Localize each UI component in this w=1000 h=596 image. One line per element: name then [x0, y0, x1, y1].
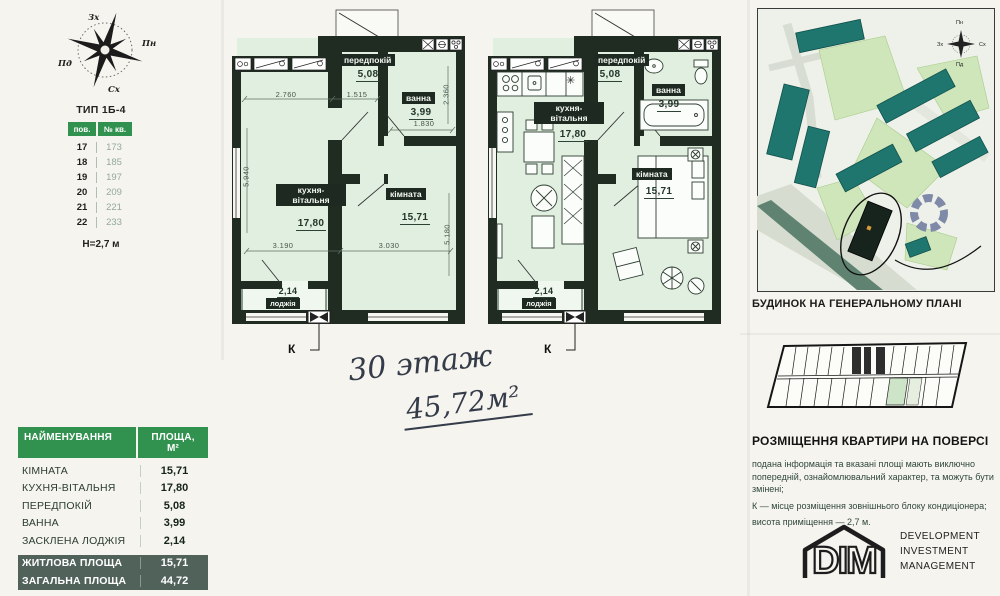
apt-no: 173 — [96, 142, 131, 153]
table-row: ЗАСКЛЕНА ЛОДЖІЯ2,14 — [18, 532, 208, 550]
table-row: 22233 — [68, 215, 134, 230]
site-compass-e: Сх — [979, 42, 986, 48]
header-name: НАЙМЕНУВАННЯ — [18, 427, 136, 458]
chair-icon — [688, 278, 704, 294]
room-label-bath: ванна — [652, 84, 685, 96]
logo-line: INVESTMENT — [900, 544, 980, 559]
total-area: 15,71 — [140, 557, 208, 569]
apt-no: 221 — [96, 202, 131, 213]
floor-no: 17 — [68, 142, 96, 153]
disclaimer-line: подана інформація та вказані площі мають… — [752, 458, 995, 496]
room-area-hallway: 5,08 — [350, 69, 386, 80]
floorplan-dimensioned: передпокій 5,08 ванна 3,99 кухня-вітальн… — [232, 8, 465, 360]
armchair-icon — [531, 185, 557, 211]
floorplan-furnished: передпокій 5,08 ванна 3,99 кухня-вітальн… — [488, 8, 721, 360]
tv-stand-icon — [497, 224, 502, 258]
room-label-hallway: передпокій — [340, 54, 395, 66]
room-area-loggia: 2,14 — [524, 286, 564, 296]
area-table-header: НАЙМЕНУВАННЯ ПЛОЩА, М² — [18, 427, 208, 458]
room-area-bath: 3,99 — [406, 107, 436, 118]
room-area-loggia: 2,14 — [268, 286, 308, 296]
room-label-kitchen: кухня-вітальня — [276, 184, 346, 206]
table-row: КІМНАТА15,71 — [18, 462, 208, 480]
floor-layout-strip — [760, 338, 994, 418]
total-row: ЗАГАЛЬНА ПЛОЩА44,72 — [18, 572, 208, 590]
developer-logo: DIM DEVELOPMENT INVESTMENT MANAGEMENT — [798, 520, 998, 582]
table-row: 18185 — [68, 155, 134, 170]
ceiling-height-note: Н=2,7 м — [68, 239, 134, 250]
room-label-room: кімната — [386, 188, 426, 200]
apt-no: 185 — [96, 157, 131, 168]
sconce-icon — [688, 240, 703, 253]
type-table: ТИП 1Б-4 пов. № кв. 17173 18185 19197 20… — [68, 104, 134, 250]
dim-2360: 2.360 — [442, 73, 451, 117]
disclaimer-line: К — місце розміщення зовнішнього блоку к… — [752, 500, 995, 513]
core-blocks — [852, 347, 885, 374]
room-area-room: 15,71 — [638, 186, 680, 197]
col-floor: пов. — [68, 122, 96, 136]
site-compass-s: Пд — [956, 62, 964, 68]
site-plan-caption: БУДИНОК НА ГЕНЕРАЛЬНОМУ ПЛАНІ — [752, 298, 1000, 310]
table-row: 17173 — [68, 140, 134, 155]
plant-icon — [661, 267, 683, 289]
room-label-loggia: лоджія — [522, 298, 556, 309]
room-label-room: кімната — [632, 168, 672, 180]
paper-crease — [747, 0, 750, 596]
compass-label-north: Пн — [141, 39, 156, 49]
total-area: 44,72 — [140, 575, 208, 587]
sconce-icon — [688, 148, 703, 161]
handwritten-area-note: 45,72м² — [400, 378, 532, 430]
sofa-icon — [562, 156, 584, 244]
dim-3030: 3.030 — [362, 241, 416, 250]
table-row: ПЕРЕДПОКІЙ5,08 — [18, 497, 208, 515]
coffee-table-icon — [532, 216, 554, 248]
condenser-key-label: К — [544, 342, 551, 356]
room-label-kitchen: кухня-вітальня — [534, 102, 604, 124]
room-label-loggia: лоджія — [266, 298, 300, 309]
condenser-mark — [564, 311, 586, 350]
dim-5180: 5.180 — [443, 213, 452, 257]
compass-label-east: Сх — [108, 85, 121, 95]
floor-no: 22 — [68, 217, 96, 228]
table-row: ВАННА3,99 — [18, 515, 208, 533]
dim-1515: 1.515 — [334, 90, 380, 99]
utility-icons — [678, 39, 718, 50]
row-area: 17,80 — [140, 482, 208, 494]
room-label-bath: ванна — [402, 92, 435, 104]
room-area-room: 15,71 — [394, 212, 436, 223]
dim-letters: DIM — [812, 540, 876, 582]
row-name: ПЕРЕДПОКІЙ — [18, 500, 140, 512]
scanned-floorplan-page: Зх Пн Пд Сх ТИП 1Б-4 пов. № кв. 17173 18… — [0, 0, 1000, 596]
dim-2760: 2.760 — [258, 90, 314, 99]
area-table-totals: ЖИТЛОВА ПЛОЩА15,71 ЗАГАЛЬНА ПЛОЩА44,72 — [18, 555, 208, 590]
compass-label-west: Зх — [88, 13, 100, 23]
floor-no: 18 — [68, 157, 96, 168]
condenser-mark — [308, 311, 330, 350]
row-name: КУХНЯ-ВІТАЛЬНЯ — [18, 482, 140, 494]
row-area: 3,99 — [140, 517, 208, 529]
logo-line: DEVELOPMENT — [900, 529, 980, 544]
room-area-kitchen: 17,80 — [288, 218, 334, 229]
site-plan-map: Пн Сх Зх Пд — [757, 8, 995, 292]
site-compass-n: Пн — [956, 20, 963, 26]
row-area: 15,71 — [140, 465, 208, 477]
apt-no: 209 — [96, 187, 131, 198]
site-compass-w: Зх — [937, 42, 943, 48]
dim-5940: 5.940 — [242, 155, 251, 199]
floor-layout-heading: РОЗМІЩЕННЯ КВАРТИРИ НА ПОВЕРСІ — [752, 434, 1000, 448]
table-row: 21221 — [68, 200, 134, 215]
utility-icons — [422, 39, 462, 50]
cabinet-icon — [497, 112, 513, 152]
apt-no: 197 — [96, 172, 131, 183]
dim-3190: 3.190 — [256, 241, 310, 250]
highlighted-unit — [886, 378, 908, 405]
col-apt: № кв. — [98, 122, 132, 136]
table-row: 20209 — [68, 185, 134, 200]
compass-rose: Зх Пн Пд Сх — [58, 2, 158, 97]
row-name: ВАННА — [18, 517, 140, 529]
row-name: ЗАСКЛЕНА ЛОДЖІЯ — [18, 535, 140, 547]
logo-line: MANAGEMENT — [900, 559, 980, 574]
room-area-hallway: 5,08 — [592, 69, 628, 80]
logo-caption: DEVELOPMENT INVESTMENT MANAGEMENT — [900, 529, 980, 574]
counter-icons — [491, 58, 582, 70]
total-row: ЖИТЛОВА ПЛОЩА15,71 — [18, 555, 208, 573]
header-area: ПЛОЩА, М² — [138, 427, 208, 458]
room-area-kitchen: 17,80 — [550, 129, 596, 140]
row-name: КІМНАТА — [18, 465, 140, 477]
room-area-bath: 3,99 — [654, 99, 684, 110]
paper-crease — [221, 0, 224, 360]
floor-no: 21 — [68, 202, 96, 213]
counter-icons — [235, 58, 326, 70]
floor-no: 19 — [68, 172, 96, 183]
area-table: НАЙМЕНУВАННЯ ПЛОЩА, М² КІМНАТА15,71 КУХН… — [18, 427, 208, 590]
room-label-hallway: передпокій — [594, 54, 649, 66]
condenser-key-label: К — [288, 342, 295, 356]
row-area: 2,14 — [140, 535, 208, 547]
dim-house-icon: DIM — [798, 520, 890, 582]
type-table-title: ТИП 1Б-4 — [68, 104, 134, 116]
total-name: ЗАГАЛЬНА ПЛОЩА — [18, 575, 140, 587]
paper-crease — [740, 333, 1000, 335]
compass-label-south: Пд — [58, 59, 72, 69]
snowflake-icon: ✳ — [566, 74, 575, 87]
table-row: КУХНЯ-ВІТАЛЬНЯ17,80 — [18, 480, 208, 498]
total-name: ЖИТЛОВА ПЛОЩА — [18, 557, 140, 569]
row-area: 5,08 — [140, 500, 208, 512]
floor-no: 20 — [68, 187, 96, 198]
apt-no: 233 — [96, 217, 131, 228]
table-row: 19197 — [68, 170, 134, 185]
type-table-header: пов. № кв. — [68, 122, 134, 136]
toilet-icon — [694, 60, 708, 84]
dim-1830: 1.830 — [400, 119, 448, 128]
